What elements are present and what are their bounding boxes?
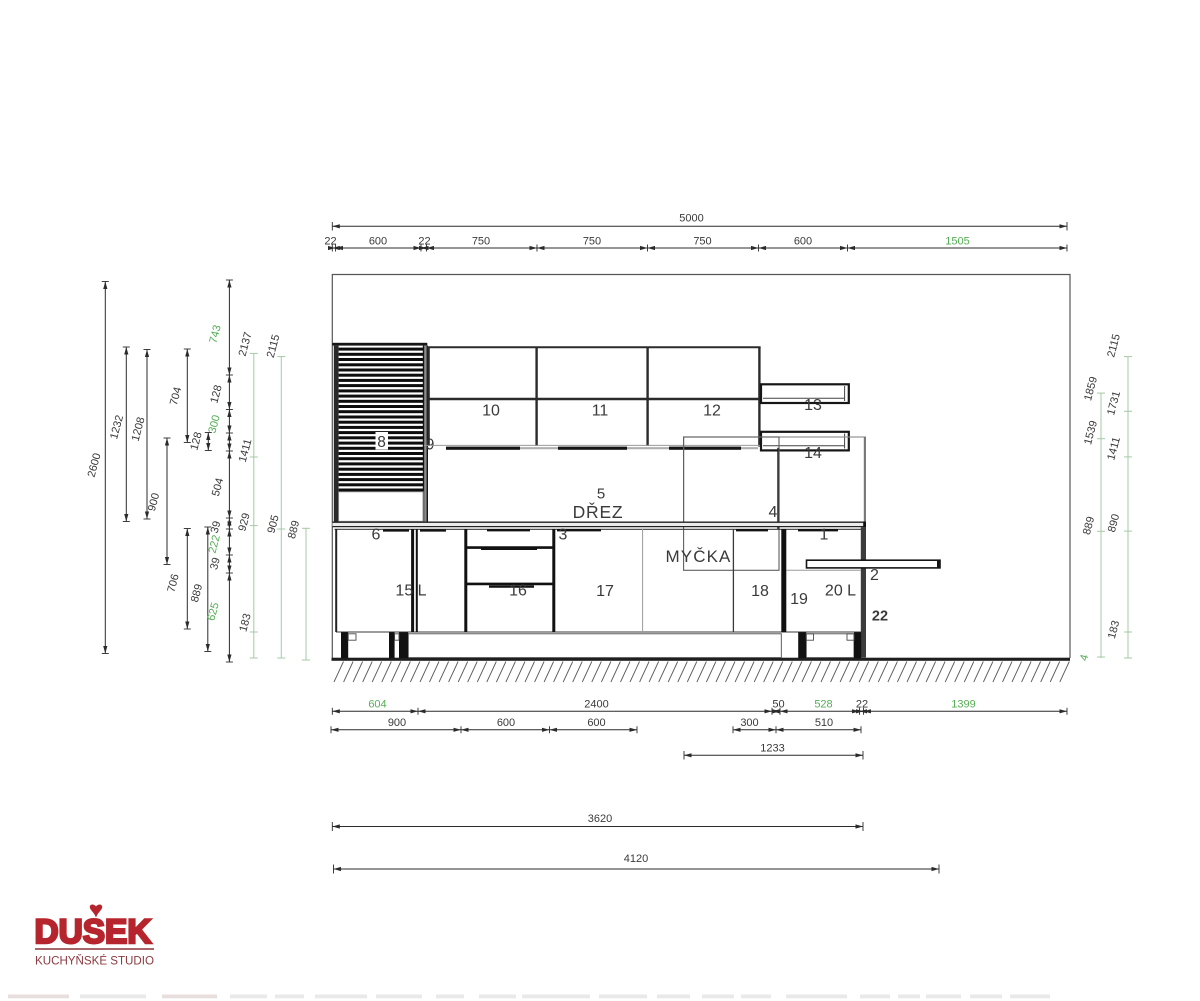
svg-text:300: 300	[740, 717, 758, 729]
svg-text:4120: 4120	[624, 853, 648, 865]
svg-text:510: 510	[815, 717, 833, 729]
svg-text:22: 22	[418, 235, 430, 247]
svg-text:3620: 3620	[588, 813, 612, 825]
svg-text:12: 12	[703, 403, 721, 420]
svg-text:19: 19	[790, 591, 808, 608]
svg-text:22: 22	[324, 235, 336, 247]
svg-text:1505: 1505	[945, 235, 969, 247]
svg-text:1: 1	[820, 527, 829, 544]
svg-text:750: 750	[472, 235, 490, 247]
svg-text:13: 13	[804, 397, 822, 414]
svg-text:16: 16	[509, 583, 527, 600]
svg-text:17: 17	[596, 583, 614, 600]
svg-text:5: 5	[597, 486, 605, 503]
svg-text:600: 600	[587, 717, 605, 729]
svg-text:MYČKA: MYČKA	[666, 547, 732, 566]
svg-text:750: 750	[693, 235, 711, 247]
svg-text:5000: 5000	[679, 213, 703, 225]
svg-text:10: 10	[482, 403, 500, 420]
svg-text:528: 528	[814, 699, 832, 711]
svg-text:4: 4	[769, 504, 778, 521]
svg-text:15 L: 15 L	[395, 583, 426, 600]
svg-text:900: 900	[388, 717, 406, 729]
svg-text:604: 604	[368, 699, 386, 711]
svg-text:3: 3	[559, 527, 568, 544]
svg-text:8: 8	[377, 434, 386, 451]
svg-text:50: 50	[772, 699, 784, 711]
svg-text:750: 750	[583, 235, 601, 247]
svg-text:2400: 2400	[584, 699, 608, 711]
svg-text:22: 22	[856, 699, 868, 711]
svg-text:20 L: 20 L	[825, 583, 856, 600]
svg-text:14: 14	[804, 445, 822, 462]
svg-text:11: 11	[592, 403, 609, 420]
svg-text:18: 18	[751, 583, 769, 600]
svg-text:600: 600	[794, 235, 812, 247]
svg-text:600: 600	[497, 717, 515, 729]
svg-text:DŘEZ: DŘEZ	[573, 502, 624, 522]
svg-text:22: 22	[872, 609, 888, 625]
svg-text:600: 600	[369, 235, 387, 247]
svg-text:1233: 1233	[760, 742, 784, 754]
svg-text:6: 6	[372, 527, 381, 544]
svg-text:DUSEK: DUSEK	[35, 913, 152, 951]
svg-text:2: 2	[870, 567, 879, 584]
svg-text:KUCHYŇSKÉ STUDIO: KUCHYŇSKÉ STUDIO	[35, 953, 154, 968]
svg-text:1399: 1399	[951, 699, 975, 711]
